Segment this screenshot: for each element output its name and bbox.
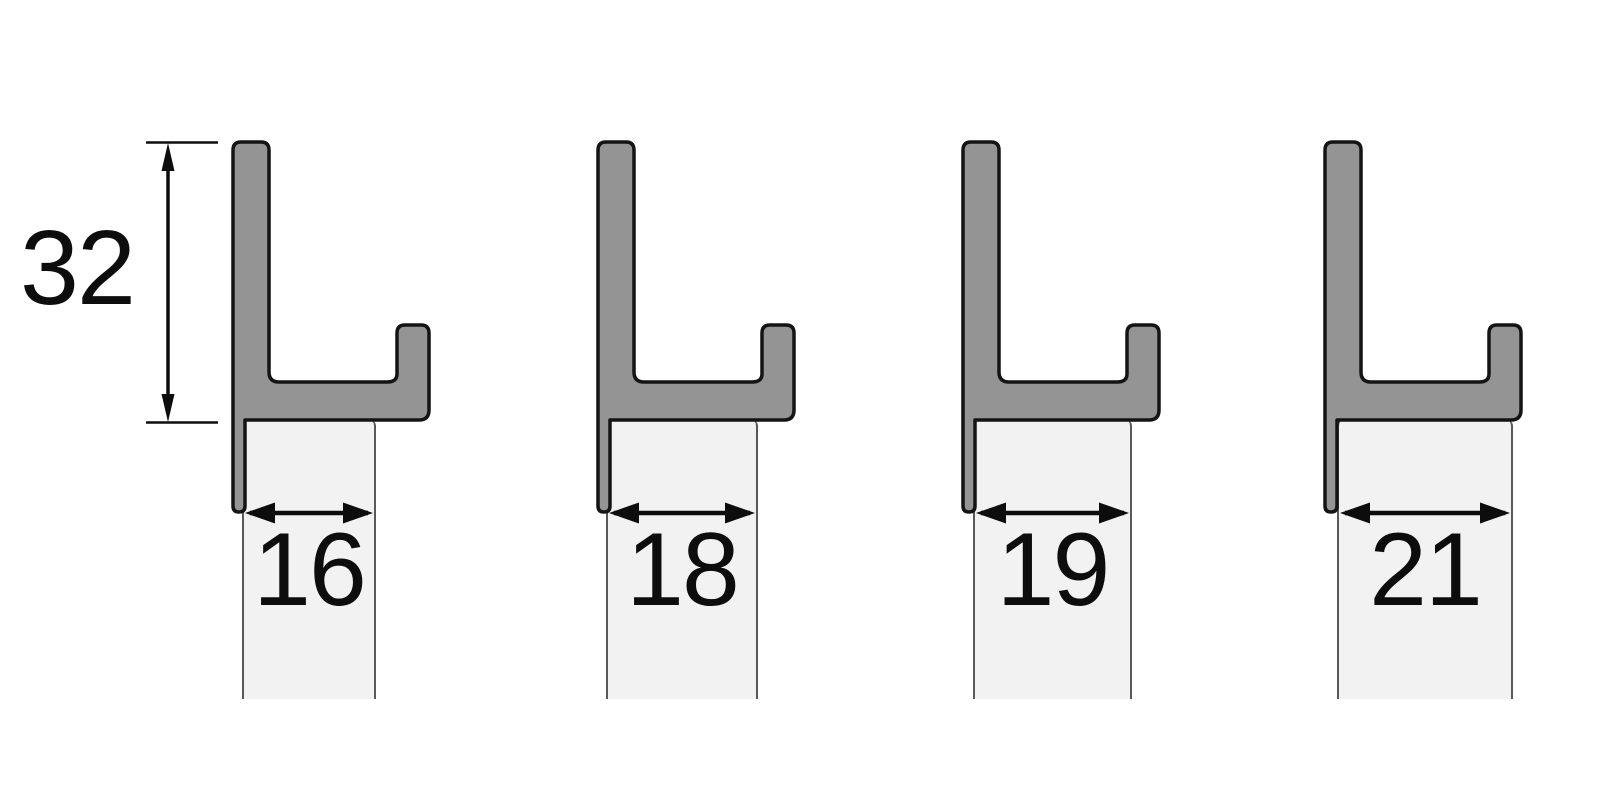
width-dimension-label: 21 [1307,520,1543,630]
height-dimension-arrow [140,130,230,440]
profile-cross-section [960,139,1166,519]
height-dimension-label: 32 [7,218,147,328]
diagram-canvas: 32 16 18 19 21 [0,0,1600,800]
profile-cross-section [1322,139,1528,519]
profile-cross-section [230,139,436,519]
width-dimension-label: 16 [212,520,406,630]
width-dimension-label: 18 [576,520,788,630]
width-dimension-label: 19 [943,520,1162,630]
profile-cross-section [595,139,801,519]
